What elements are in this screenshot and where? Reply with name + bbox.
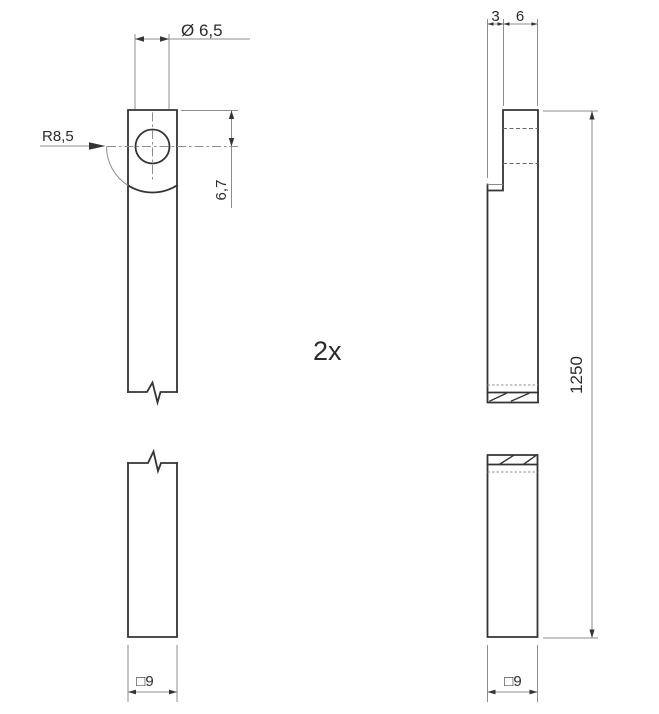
- front-lower-outline: [128, 463, 177, 637]
- square-side-arrow-left: [488, 690, 496, 695]
- hole-diameter-dimension: Ø 6,5: [135, 21, 250, 109]
- break-zigzag-bottom: [128, 383, 177, 403]
- side-lower-outline: [488, 455, 538, 637]
- square-section-dimension-side: □9: [488, 645, 538, 702]
- hole-diameter-dimension-label: Ø 6,5: [181, 21, 223, 40]
- hole-offset-arrow-down: [229, 138, 234, 147]
- side-view-lower: [488, 455, 538, 637]
- diameter-arrow-left: [135, 36, 144, 42]
- hole-hidden-lines: [503, 129, 538, 164]
- square-section-label-front: □9: [136, 673, 153, 690]
- length-arrow-up: [589, 111, 594, 120]
- radius-dimension: R8,5: [40, 128, 106, 150]
- front-view-upper: [107, 110, 239, 403]
- technical-drawing-canvas: Ø 6,5 R8,5 6,7 □9: [0, 0, 659, 714]
- drawing-sheet: Ø 6,5 R8,5 6,7 □9: [0, 0, 659, 714]
- radius-arc-extension: [107, 147, 129, 186]
- dim6-arrow-left: [504, 22, 510, 26]
- side-view-upper: [488, 110, 539, 403]
- length-arrow-down: [589, 630, 594, 639]
- hole-offset-dimension-label: 6,7: [213, 180, 230, 201]
- dim6-arrow-right: [532, 22, 538, 26]
- radius-dimension-label: R8,5: [42, 128, 74, 145]
- side-upper-outline: [488, 110, 539, 403]
- break-band-upper-hatch: [490, 394, 529, 402]
- break-zigzag-top: [128, 452, 177, 472]
- quantity-label: 2x: [313, 336, 342, 366]
- hole-offset-dimension: 6,7: [181, 111, 238, 209]
- head-radius-arc: [128, 185, 177, 192]
- overall-length-dimension: 1250: [543, 111, 598, 638]
- tab-thickness-dimension-label: 6: [516, 8, 524, 25]
- square-front-arrow-right: [169, 690, 177, 695]
- front-view-lower: [128, 452, 177, 638]
- overall-length-dimension-label: 1250: [567, 356, 586, 394]
- radius-leader-arrow: [89, 142, 106, 149]
- hole-offset-arrow-up: [229, 111, 234, 120]
- square-front-arrow-left: [128, 690, 136, 695]
- break-band-lower-hatch: [500, 456, 536, 464]
- diameter-extension-lines: [135, 34, 169, 109]
- thickness-dimensions: 3 6: [488, 8, 538, 178]
- square-side-arrow-right: [530, 690, 538, 695]
- diameter-arrow-right: [160, 36, 169, 42]
- step-width-dimension-label: 3: [491, 8, 499, 25]
- square-section-dimension-front: □9: [128, 645, 177, 702]
- square-section-label-side: □9: [504, 673, 521, 690]
- thickness-extension-lines: [488, 19, 538, 178]
